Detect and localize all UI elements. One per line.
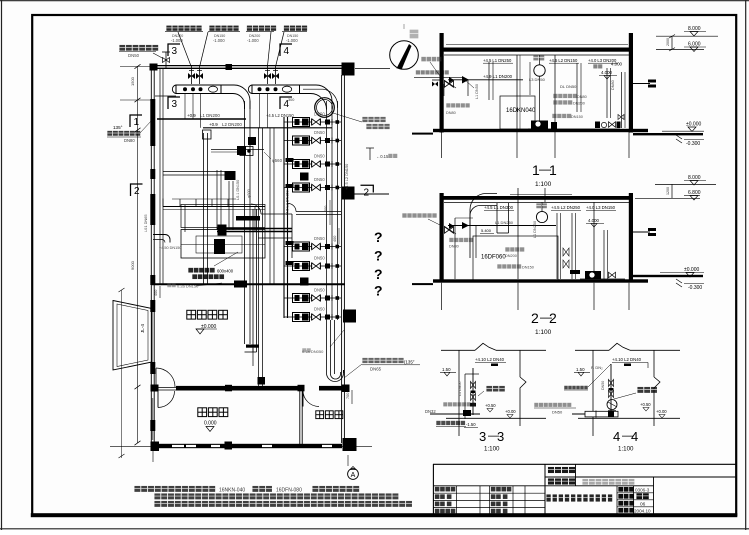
- svg-text:φ560: φ560: [272, 158, 283, 163]
- svg-text:DN50: DN50: [314, 236, 325, 241]
- svg-text:4.000: 4.000: [588, 218, 600, 223]
- svg-text:1200: 1200: [666, 187, 670, 195]
- svg-text:1:100: 1:100: [484, 446, 500, 453]
- svg-text:(135°: (135°: [404, 360, 415, 365]
- svg-text:+4.10 L2 DN40: +4.10 L2 DN40: [475, 357, 505, 362]
- svg-text:DN50: DN50: [601, 381, 605, 390]
- svg-text:DN50: DN50: [552, 410, 563, 415]
- svg-text:+4.9 L1 DN200: +4.9 L1 DN200: [483, 74, 513, 79]
- svg-text:DN50: DN50: [314, 112, 325, 117]
- svg-text:2: 2: [549, 310, 557, 326]
- svg-text:-1.000: -1.000: [213, 38, 225, 43]
- svg-text:L1 DN50: L1 DN50: [475, 84, 479, 99]
- svg-text:DN80: DN80: [446, 111, 456, 115]
- svg-text:?: ?: [374, 229, 383, 245]
- svg-text:L01 DN65: L01 DN65: [143, 214, 148, 232]
- svg-text:DN50: DN50: [128, 53, 140, 58]
- svg-text:0.2a DN150: 0.2a DN150: [177, 284, 199, 289]
- svg-text:←0.15: ←0.15: [376, 154, 389, 159]
- svg-text:+0.00: +0.00: [656, 409, 667, 414]
- svg-text:+4.5 L2 DN250: +4.5 L2 DN250: [551, 205, 581, 210]
- svg-text:+4.5 L2 DN150: +4.5 L2 DN150: [344, 163, 349, 190]
- svg-text:-0.300: -0.300: [686, 141, 700, 147]
- svg-text:L3 DN50: L3 DN50: [529, 77, 546, 82]
- svg-text:700: 700: [346, 393, 350, 399]
- svg-text:+0.50: +0.50: [485, 403, 496, 408]
- svg-text:+4.50 DN150: +4.50 DN150: [159, 246, 181, 250]
- svg-text:1500: 1500: [130, 76, 135, 86]
- svg-text:6.800: 6.800: [688, 190, 701, 196]
- svg-text:L2 DN200: L2 DN200: [222, 122, 242, 127]
- svg-text:2: 2: [364, 188, 370, 199]
- svg-text:1: 1: [134, 117, 140, 128]
- svg-text:2: 2: [134, 186, 140, 197]
- svg-text:?: ?: [374, 283, 383, 299]
- svg-text:+0.9: +0.9: [187, 113, 196, 118]
- svg-text:P. DN₂: P. DN₂: [591, 365, 603, 370]
- svg-text:+4.5 L2 DN150: +4.5 L2 DN150: [549, 58, 578, 63]
- svg-text:600x400: 600x400: [217, 269, 234, 274]
- svg-text:-0.300: -0.300: [688, 285, 702, 291]
- svg-text:8.000: 8.000: [688, 26, 701, 32]
- svg-text:400: 400: [154, 290, 158, 296]
- svg-text:+4.5 L1 DN250: +4.5 L1 DN250: [483, 58, 512, 63]
- svg-text:-1.50: -1.50: [466, 422, 476, 427]
- svg-text:+0.50: +0.50: [640, 402, 651, 407]
- svg-text:φ500: φ500: [247, 189, 251, 198]
- svg-text:1: 1: [549, 162, 557, 178]
- svg-text:+4.0 L3 DN150: +4.0 L3 DN150: [586, 205, 616, 210]
- svg-text:DN80: DN80: [577, 95, 587, 99]
- svg-text:1.50: 1.50: [442, 367, 451, 372]
- svg-text:DN150: DN150: [571, 115, 583, 119]
- svg-text:16DKN040: 16DKN040: [506, 108, 536, 114]
- svg-text:?: ?: [374, 248, 383, 264]
- svg-text:L1 DN50: L1 DN50: [458, 381, 462, 396]
- svg-text:2004.10: 2004.10: [634, 509, 651, 514]
- svg-text:400: 400: [324, 206, 328, 212]
- svg-text:3: 3: [172, 46, 178, 57]
- svg-text:DN50: DN50: [314, 130, 325, 135]
- svg-text:0306-3: 0306-3: [635, 488, 650, 493]
- svg-text:JL-4: JL-4: [140, 324, 145, 333]
- svg-text:8.000: 8.000: [688, 175, 701, 181]
- svg-text:DN200: DN200: [505, 254, 517, 258]
- svg-text:-1.000: -1.000: [247, 38, 259, 43]
- svg-text:1:100: 1:100: [618, 446, 634, 453]
- svg-text:6.000: 6.000: [688, 42, 701, 48]
- svg-text:1:100: 1:100: [535, 329, 552, 336]
- svg-text:DN80: DN80: [611, 80, 615, 90]
- svg-text:2000: 2000: [666, 38, 670, 46]
- svg-text:300: 300: [288, 98, 294, 102]
- svg-text:L1 DN200: L1 DN200: [200, 113, 220, 118]
- svg-text:16DFN-080: 16DFN-080: [276, 488, 302, 494]
- svg-text:±0.000: ±0.000: [686, 122, 701, 128]
- svg-text:9000: 9000: [130, 260, 135, 270]
- svg-text:DN80: DN80: [124, 138, 135, 143]
- svg-text:1.50: 1.50: [576, 367, 585, 372]
- svg-text:±0.000: ±0.000: [684, 267, 699, 273]
- svg-text:A: A: [351, 472, 356, 479]
- svg-text:5.400: 5.400: [481, 228, 492, 233]
- svg-text:DN50: DN50: [314, 154, 325, 159]
- svg-text:DN65: DN65: [370, 367, 382, 372]
- svg-text:DN50: DN50: [314, 288, 325, 293]
- svg-text:1:100: 1:100: [535, 181, 552, 188]
- svg-text:3: 3: [479, 429, 486, 444]
- svg-text:400: 400: [333, 236, 337, 242]
- svg-text:DN80: DN80: [449, 245, 459, 249]
- svg-text:3: 3: [497, 429, 504, 444]
- svg-text:+0.00: +0.00: [505, 409, 516, 414]
- svg-text:L0.1 DN150: L0.1 DN150: [236, 180, 240, 200]
- svg-text:0.000: 0.000: [204, 421, 217, 427]
- svg-text:DN50: DN50: [314, 177, 325, 182]
- svg-text:+4.10 L2 DN40: +4.10 L2 DN40: [612, 357, 642, 362]
- svg-text:16DF060: 16DF060: [481, 255, 506, 261]
- svg-text:?: ?: [374, 266, 383, 282]
- svg-text:+4.5 L2 DN150: +4.5 L2 DN150: [266, 113, 294, 118]
- svg-text:DN50: DN50: [314, 256, 325, 261]
- svg-text:DL DN50: DL DN50: [560, 84, 577, 89]
- svg-text:DN50: DN50: [314, 307, 325, 312]
- svg-text:16NKN-040: 16NKN-040: [219, 488, 245, 494]
- svg-text:DN32: DN32: [425, 409, 436, 414]
- svg-text:4: 4: [284, 46, 290, 57]
- svg-text:135°: 135°: [113, 125, 123, 130]
- svg-text:4.000: 4.000: [611, 62, 623, 67]
- svg-text:+0.9: +0.9: [209, 122, 218, 127]
- svg-text:DN150: DN150: [522, 266, 534, 270]
- svg-text:DN200: DN200: [573, 102, 585, 106]
- svg-text:4: 4: [631, 429, 638, 444]
- svg-text:L1 DN250: L1 DN250: [495, 220, 514, 225]
- svg-text:2: 2: [531, 310, 539, 326]
- svg-text:-1.000: -1.000: [286, 38, 298, 43]
- svg-text:4: 4: [613, 429, 620, 444]
- svg-text:L1 DN250: L1 DN250: [533, 221, 537, 238]
- svg-text:06: 06: [640, 502, 646, 508]
- svg-text:3: 3: [172, 99, 178, 110]
